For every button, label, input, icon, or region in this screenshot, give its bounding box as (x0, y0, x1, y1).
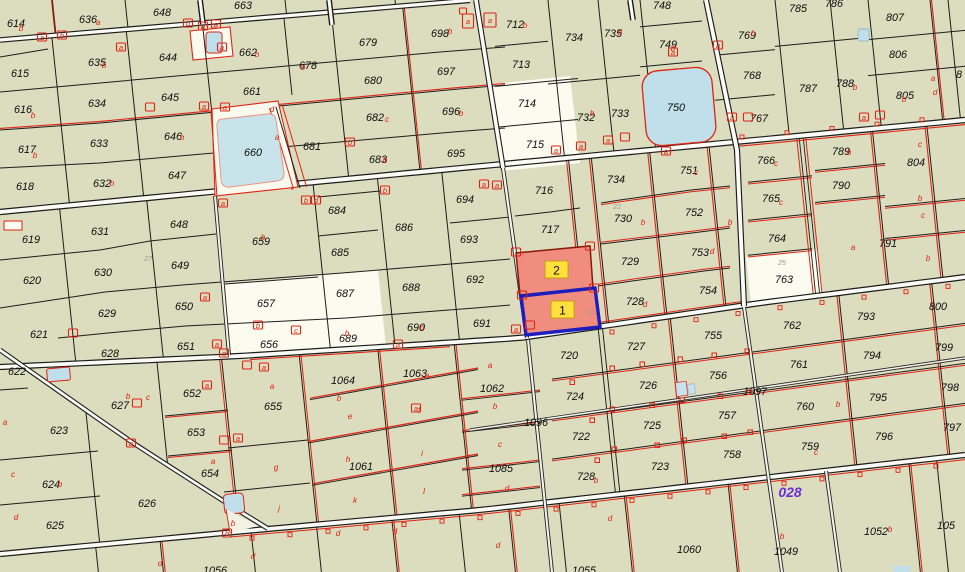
svg-text:d: d (14, 513, 19, 522)
svg-text:b: b (261, 233, 266, 242)
svg-text:b: b (58, 480, 63, 489)
svg-text:619: 619 (22, 234, 40, 246)
svg-text:760: 760 (796, 401, 814, 413)
svg-text:693: 693 (460, 234, 478, 246)
svg-text:632: 632 (93, 178, 111, 190)
svg-text:1055: 1055 (572, 565, 597, 572)
svg-text:b: b (641, 218, 646, 227)
svg-text:d: d (608, 514, 613, 523)
svg-text:716: 716 (535, 185, 553, 197)
svg-text:a: a (495, 181, 499, 190)
svg-text:1056: 1056 (203, 565, 227, 572)
svg-text:788: 788 (836, 78, 854, 90)
svg-text:b: b (590, 109, 595, 118)
svg-text:695: 695 (447, 148, 466, 160)
svg-text:a: a (488, 16, 492, 25)
svg-text:621: 621 (30, 329, 48, 341)
svg-text:712: 712 (506, 19, 524, 31)
svg-text:687: 687 (336, 288, 355, 300)
svg-text:654: 654 (201, 468, 219, 480)
svg-text:b: b (448, 27, 453, 36)
svg-text:790: 790 (832, 180, 850, 192)
svg-text:753: 753 (691, 247, 709, 259)
svg-text:d: d (710, 247, 715, 256)
svg-text:a: a (222, 349, 226, 358)
svg-text:717: 717 (541, 224, 560, 236)
svg-text:1061: 1061 (349, 461, 373, 473)
svg-text:b: b (594, 476, 599, 485)
svg-text:b: b (926, 254, 931, 263)
svg-text:a: a (664, 147, 668, 156)
svg-text:626: 626 (138, 498, 156, 510)
svg-text:a: a (514, 325, 518, 334)
svg-text:d: d (336, 529, 341, 538)
svg-text:b: b (348, 138, 352, 147)
svg-text:a: a (202, 102, 206, 111)
svg-text:620: 620 (23, 275, 41, 287)
svg-text:d: d (643, 300, 648, 309)
svg-text:652: 652 (183, 388, 201, 400)
svg-text:b: b (383, 186, 387, 195)
svg-text:b: b (728, 218, 733, 227)
svg-text:27: 27 (143, 256, 153, 263)
svg-text:694: 694 (456, 194, 474, 206)
svg-text:734: 734 (565, 32, 583, 44)
svg-text:a: a (211, 457, 216, 466)
svg-text:c: c (385, 115, 389, 124)
svg-text:a: a (221, 199, 225, 208)
svg-text:768: 768 (743, 70, 761, 82)
svg-text:688: 688 (402, 282, 420, 294)
svg-text:a: a (220, 43, 224, 52)
svg-text:696: 696 (442, 106, 460, 118)
svg-text:b: b (180, 133, 185, 142)
svg-text:a: a (119, 43, 123, 52)
svg-text:b: b (853, 83, 858, 92)
svg-text:8: 8 (956, 69, 962, 81)
svg-text:663: 663 (234, 0, 252, 12)
svg-text:679: 679 (359, 37, 377, 49)
svg-text:762: 762 (783, 320, 801, 332)
svg-text:d: d (251, 552, 256, 561)
svg-text:729: 729 (621, 256, 639, 268)
svg-text:629: 629 (98, 308, 116, 320)
svg-text:a: a (275, 133, 280, 142)
svg-text:724: 724 (566, 391, 584, 403)
svg-text:656: 656 (260, 339, 278, 351)
svg-text:c: c (774, 159, 778, 168)
svg-text:c: c (921, 211, 925, 220)
svg-text:728: 728 (577, 471, 595, 483)
svg-text:h: h (346, 455, 351, 464)
svg-text:a: a (488, 361, 493, 370)
svg-text:800: 800 (929, 301, 947, 313)
svg-text:728: 728 (626, 296, 644, 308)
svg-text:b: b (902, 95, 907, 104)
svg-text:a: a (129, 439, 133, 448)
svg-text:714: 714 (518, 98, 536, 110)
svg-text:806: 806 (889, 49, 907, 61)
svg-text:l: l (423, 487, 425, 496)
svg-text:b: b (102, 61, 107, 70)
svg-text:730: 730 (614, 213, 632, 225)
svg-text:748: 748 (653, 0, 671, 12)
svg-text:804: 804 (907, 157, 925, 169)
svg-text:634: 634 (88, 98, 106, 110)
svg-text:b: b (345, 329, 350, 338)
svg-text:758: 758 (723, 449, 741, 461)
svg-text:b: b (231, 519, 236, 528)
svg-text:761: 761 (790, 359, 808, 371)
svg-text:b: b (493, 402, 498, 411)
svg-text:a: a (425, 371, 430, 380)
svg-text:766: 766 (757, 155, 775, 167)
svg-text:b: b (33, 151, 38, 160)
svg-text:764: 764 (768, 233, 786, 245)
svg-text:a: a (201, 22, 205, 31)
svg-text:682: 682 (366, 112, 384, 124)
svg-text:a: a (223, 103, 227, 112)
svg-text:d: d (496, 541, 501, 550)
svg-text:b: b (459, 109, 464, 118)
svg-text:661: 661 (243, 86, 261, 98)
svg-text:628: 628 (101, 348, 119, 360)
svg-text:616: 616 (14, 104, 32, 116)
svg-text:b: b (110, 179, 115, 188)
svg-text:660: 660 (244, 147, 262, 159)
svg-text:692: 692 (466, 274, 484, 286)
svg-text:655: 655 (264, 401, 283, 413)
svg-text:b: b (301, 63, 306, 72)
svg-text:i: i (421, 449, 423, 458)
svg-text:a: a (851, 243, 856, 252)
svg-text:1063: 1063 (403, 368, 427, 380)
svg-text:a: a (203, 293, 207, 302)
svg-text:799: 799 (935, 342, 953, 354)
svg-text:786: 786 (825, 0, 843, 10)
svg-text:622: 622 (8, 366, 26, 378)
svg-text:b: b (255, 50, 260, 59)
svg-text:636: 636 (79, 14, 97, 26)
svg-text:807: 807 (886, 12, 905, 24)
svg-text:b: b (60, 31, 64, 40)
svg-text:644: 644 (159, 52, 177, 64)
svg-text:633: 633 (90, 138, 108, 150)
svg-text:a: a (270, 382, 275, 391)
svg-text:722: 722 (572, 431, 590, 443)
svg-text:715: 715 (526, 139, 545, 151)
svg-text:b: b (523, 21, 528, 30)
svg-text:725: 725 (643, 420, 662, 432)
svg-text:25: 25 (777, 260, 786, 267)
svg-text:b: b (888, 525, 893, 534)
svg-text:c: c (498, 440, 502, 449)
svg-text:615: 615 (11, 68, 30, 80)
svg-text:647: 647 (168, 170, 187, 182)
svg-text:028: 028 (778, 484, 802, 500)
svg-text:d: d (158, 559, 163, 568)
svg-text:1062: 1062 (480, 383, 504, 395)
svg-text:631: 631 (91, 226, 109, 238)
svg-text:b: b (256, 321, 260, 330)
svg-text:2: 2 (553, 264, 560, 278)
svg-text:649: 649 (171, 260, 189, 272)
svg-text:b: b (751, 29, 756, 38)
svg-text:713: 713 (512, 59, 530, 71)
svg-text:791: 791 (879, 238, 897, 250)
svg-text:754: 754 (699, 285, 717, 297)
svg-text:b: b (337, 394, 342, 403)
svg-text:b: b (225, 529, 229, 538)
svg-text:726: 726 (639, 380, 657, 392)
svg-text:d: d (933, 88, 938, 97)
svg-text:727: 727 (627, 341, 646, 353)
svg-text:653: 653 (187, 427, 205, 439)
svg-text:623: 623 (50, 425, 68, 437)
svg-text:1049: 1049 (774, 546, 798, 558)
svg-text:763: 763 (775, 274, 793, 286)
svg-text:752: 752 (685, 207, 703, 219)
svg-text:797: 797 (943, 422, 962, 434)
svg-text:g: g (274, 463, 279, 472)
svg-text:793: 793 (857, 311, 875, 323)
svg-text:627: 627 (111, 400, 130, 412)
svg-text:a: a (40, 33, 44, 42)
svg-text:a: a (716, 41, 720, 50)
svg-text:b: b (420, 323, 425, 332)
svg-text:795: 795 (869, 392, 888, 404)
svg-text:a: a (862, 113, 866, 122)
svg-text:c: c (146, 393, 150, 402)
svg-text:e: e (348, 412, 353, 421)
svg-text:681: 681 (303, 141, 321, 153)
svg-text:1060: 1060 (677, 544, 701, 556)
svg-text:b: b (19, 24, 24, 33)
svg-text:a: a (414, 404, 418, 413)
svg-text:1052: 1052 (864, 526, 888, 538)
svg-text:105: 105 (937, 520, 956, 532)
svg-text:c: c (779, 198, 783, 207)
svg-text:c: c (918, 140, 922, 149)
svg-text:697: 697 (437, 66, 456, 78)
svg-text:756: 756 (709, 370, 727, 382)
svg-text:733: 733 (611, 108, 629, 120)
svg-text:1064: 1064 (331, 375, 355, 387)
svg-text:a: a (96, 18, 101, 27)
svg-text:a: a (730, 113, 734, 122)
svg-text:c: c (11, 470, 15, 479)
svg-text:a: a (214, 20, 218, 29)
svg-text:1: 1 (559, 304, 566, 318)
svg-text:d: d (393, 527, 398, 536)
svg-text:a: a (554, 146, 558, 155)
svg-text:b: b (31, 111, 36, 120)
svg-text:798: 798 (941, 382, 959, 394)
svg-text:j: j (277, 504, 280, 513)
svg-text:648: 648 (170, 219, 188, 231)
svg-text:785: 785 (789, 3, 808, 15)
svg-text:698: 698 (431, 28, 449, 40)
svg-text:618: 618 (16, 181, 34, 193)
svg-text:b: b (383, 156, 388, 165)
svg-text:c: c (814, 448, 818, 457)
svg-text:b: b (126, 392, 131, 401)
svg-text:b: b (780, 532, 785, 541)
svg-text:a: a (466, 17, 470, 26)
svg-text:b: b (304, 196, 308, 205)
svg-text:720: 720 (560, 350, 578, 362)
svg-text:a: a (236, 434, 240, 443)
svg-text:a: a (579, 142, 583, 151)
svg-text:787: 787 (799, 83, 818, 95)
svg-text:a: a (215, 340, 219, 349)
svg-text:684: 684 (328, 205, 346, 217)
svg-text:1085: 1085 (489, 463, 514, 475)
svg-text:757: 757 (718, 410, 737, 422)
svg-text:22: 22 (612, 204, 621, 211)
svg-text:625: 625 (46, 520, 65, 532)
svg-text:a: a (396, 340, 400, 349)
svg-text:b: b (918, 194, 923, 203)
svg-text:680: 680 (364, 75, 382, 87)
svg-text:b: b (847, 148, 852, 157)
svg-text:651: 651 (177, 341, 195, 353)
svg-text:648: 648 (153, 7, 171, 19)
svg-text:734: 734 (607, 174, 625, 186)
svg-text:723: 723 (651, 461, 669, 473)
svg-text:a: a (3, 418, 8, 427)
svg-text:b: b (186, 19, 190, 28)
svg-text:a: a (671, 48, 675, 57)
svg-text:630: 630 (94, 267, 112, 279)
svg-text:a: a (606, 136, 610, 145)
svg-text:d: d (505, 484, 510, 493)
svg-text:a: a (205, 381, 209, 390)
svg-text:657: 657 (257, 298, 276, 310)
svg-text:685: 685 (331, 247, 350, 259)
svg-text:a: a (931, 74, 936, 83)
svg-text:b: b (618, 28, 623, 37)
svg-text:a: a (262, 363, 266, 372)
svg-text:650: 650 (175, 301, 193, 313)
svg-text:c: c (294, 326, 298, 335)
svg-text:d: d (270, 105, 275, 114)
svg-text:b: b (836, 400, 841, 409)
svg-text:691: 691 (473, 318, 491, 330)
svg-text:a: a (482, 180, 486, 189)
svg-text:645: 645 (161, 92, 180, 104)
svg-text:c: c (694, 168, 698, 177)
svg-text:1096: 1096 (524, 417, 548, 429)
svg-text:750: 750 (667, 102, 685, 114)
svg-text:686: 686 (395, 222, 413, 234)
svg-text:755: 755 (704, 330, 723, 342)
svg-text:21: 21 (585, 309, 594, 316)
svg-text:794: 794 (863, 350, 881, 362)
svg-text:796: 796 (875, 431, 893, 443)
